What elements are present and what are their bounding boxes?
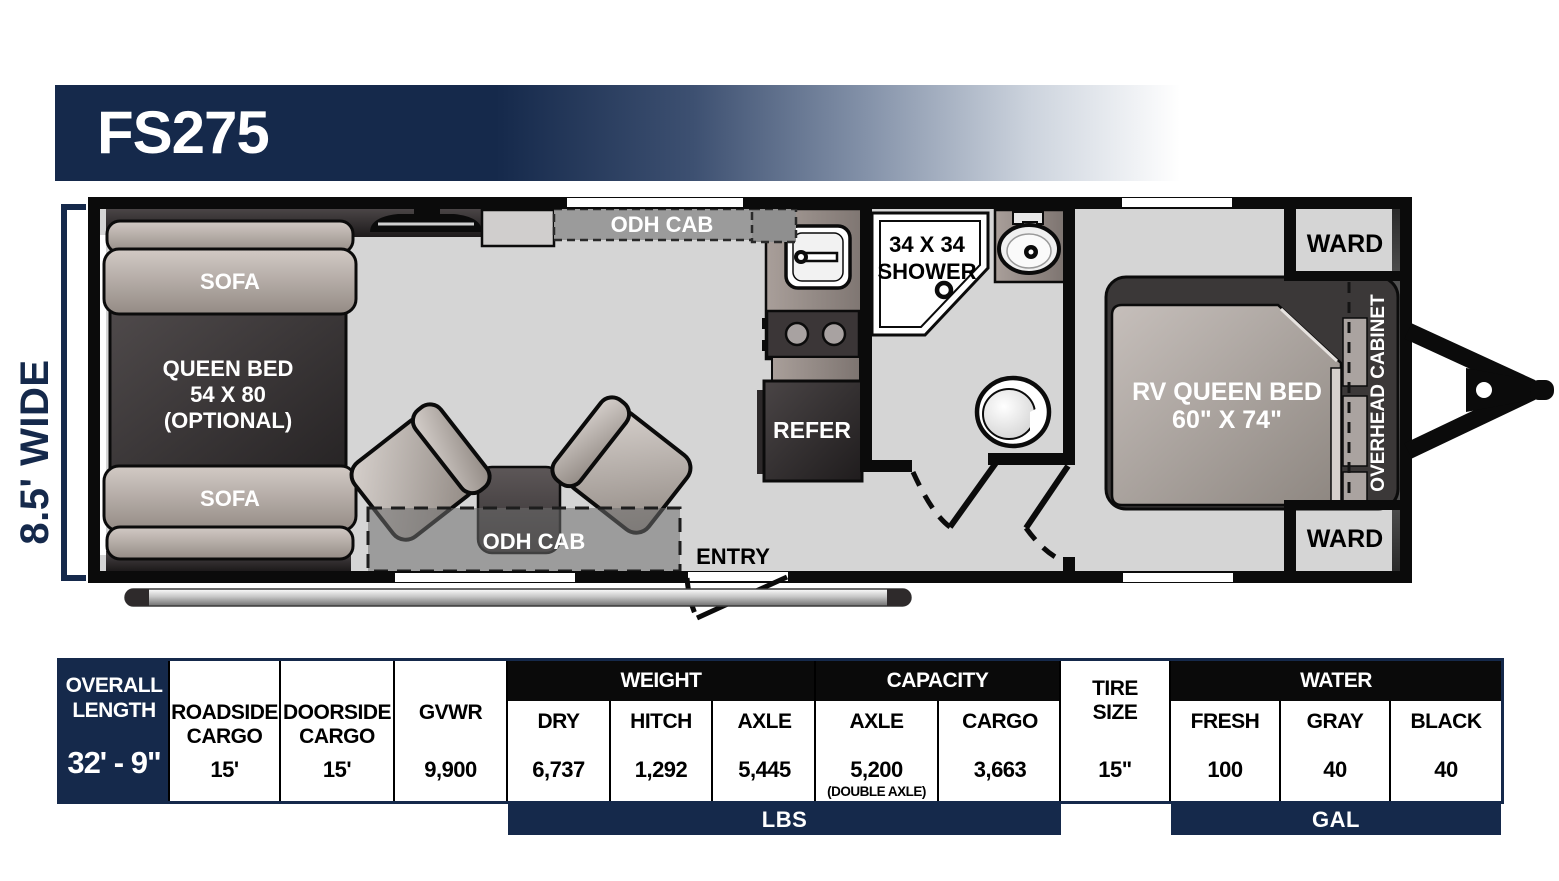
weight-axle-value: 5,445 (713, 757, 816, 783)
queen-bed-label-1: QUEEN BED (163, 356, 294, 381)
hitch (1408, 331, 1554, 451)
tire-size-value: 15" (1061, 757, 1169, 783)
door-stub-wall (1063, 557, 1075, 572)
gvwr-value: 9,900 (395, 757, 506, 783)
spec-table-units-row: LBS GAL (60, 804, 1504, 835)
bed-rail (1331, 368, 1341, 505)
rv-queen-bed-label-1: RV QUEEN BED (1132, 378, 1322, 406)
spec-table-main: OVERALL LENGTH 32' - 9" ROADSIDE CARGO 1… (57, 658, 1504, 804)
ward-top-label: WARD (1307, 230, 1383, 258)
width-bracket (64, 207, 86, 578)
weight-hitch-value: 1,292 (611, 757, 711, 783)
ward-bottom-label: WARD (1307, 525, 1383, 553)
doorside-cargo-value: 15' (281, 757, 393, 783)
roadside-cargo-label-1: ROADSIDE (170, 701, 279, 725)
cabinet-shelf-2 (1343, 396, 1367, 466)
window-bottom-1 (395, 573, 575, 582)
bath-sink-drain-center (1029, 250, 1034, 255)
ward-top-wall-h (1284, 271, 1412, 281)
capacity-axle-value: 5,200 (816, 757, 937, 783)
window-top-1 (567, 198, 743, 207)
capacity-cargo-cell: CARGO 3,663 (939, 701, 1061, 801)
weight-group: WEIGHT DRY 6,737 HITCH 1,292 AXLE 5,445 (508, 661, 816, 801)
water-black-label: BLACK (1391, 701, 1501, 734)
water-header: WATER (1171, 661, 1501, 701)
awning-cap-right (887, 589, 911, 606)
burner-1 (786, 323, 808, 345)
awning-cap-left (125, 589, 149, 606)
roadside-cargo-cell: ROADSIDE CARGO 15' (170, 661, 281, 801)
wall-left (88, 197, 100, 583)
gal-bar: GAL (1171, 804, 1501, 835)
weight-dry-value: 6,737 (508, 757, 609, 783)
bath-wall-foot (860, 460, 912, 472)
queen-bed-label-2: 54 X 80 (190, 382, 266, 407)
cabinet-shelf-1 (1343, 318, 1367, 386)
hitch-pin-hole (1476, 382, 1492, 398)
wall-right (1400, 197, 1412, 583)
overall-length-cell: OVERALL LENGTH 32' - 9" (60, 661, 170, 801)
water-gray-label: GRAY (1281, 701, 1389, 734)
width-label: 8.5' WIDE (13, 359, 57, 544)
roadside-cargo-label-2: CARGO (170, 725, 279, 749)
overall-length-label-1: OVERALL (60, 673, 168, 698)
weight-dry-cell: DRY 6,737 (508, 701, 611, 801)
odh-cab-top-label: ODH CAB (611, 212, 714, 237)
ward-top-wall-v (1284, 209, 1296, 277)
capacity-axle-cell: AXLE 5,200 (DOUBLE AXLE) (816, 701, 939, 801)
water-group: WATER FRESH 100 GRAY 40 BLACK 40 (1171, 661, 1501, 801)
bath-wall-bottom (988, 453, 1075, 465)
floorplan-diagram: SOFA SOFA QUEEN BED 54 X 80 (OPTIONAL) (0, 0, 1559, 655)
refer-label: REFER (773, 417, 851, 443)
shower-label-2: SHOWER (878, 259, 977, 284)
hitch-coupler (1530, 380, 1554, 400)
capacity-axle-note: (DOUBLE AXLE) (816, 784, 937, 799)
weight-hitch-label: HITCH (611, 701, 711, 734)
overall-length-label-2: LENGTH (60, 698, 168, 723)
roadside-cargo-value: 15' (170, 757, 279, 783)
gvwr-cell: GVWR 9,900 (395, 661, 508, 801)
tire-size-label-1: TIRE (1061, 677, 1169, 701)
overhead-cabinet-label: OVERHEAD CABINET (1368, 294, 1389, 492)
width-dimension: 8.5' WIDE (13, 207, 86, 578)
weight-dry-label: DRY (508, 701, 609, 734)
spec-table: OVERALL LENGTH 32' - 9" ROADSIDE CARGO 1… (57, 658, 1504, 835)
entry-opening (688, 572, 788, 581)
shower-drain-icon (937, 283, 951, 297)
ward-bottom-wall-v (1284, 508, 1296, 571)
toilet-bowl (983, 389, 1035, 439)
overall-length-value: 32' - 9" (60, 745, 168, 781)
water-fresh-value: 100 (1171, 757, 1279, 783)
shower-label-1: 34 X 34 (889, 232, 966, 257)
units-spacer-left (60, 804, 508, 835)
tire-size-cell: TIRE SIZE 15" (1061, 661, 1171, 801)
rv-queen-bed-label-2: 60" X 74" (1172, 406, 1282, 434)
faucet-spout (805, 253, 837, 261)
capacity-cargo-value: 3,663 (939, 757, 1061, 783)
weight-axle-cell: AXLE 5,445 (713, 701, 816, 801)
rear-lounge: SOFA SOFA QUEEN BED 54 X 80 (OPTIONAL) (104, 221, 356, 559)
awning-rod (125, 589, 911, 606)
queen-bed-label-3: (OPTIONAL) (164, 408, 292, 433)
units-spacer-tire (1061, 804, 1171, 835)
faucet-center (798, 254, 804, 260)
bath-wall-left (860, 209, 872, 471)
gvwr-label: GVWR (395, 701, 506, 725)
page: FS275 (0, 0, 1559, 881)
water-fresh-label: FRESH (1171, 701, 1279, 734)
water-gray-cell: GRAY 40 (1281, 701, 1391, 801)
weight-hitch-cell: HITCH 1,292 (611, 701, 713, 801)
water-gray-value: 40 (1281, 757, 1389, 783)
water-black-value: 40 (1391, 757, 1501, 783)
capacity-cargo-label: CARGO (939, 701, 1061, 734)
odh-cab-kitchen (752, 209, 796, 242)
water-fresh-cell: FRESH 100 (1171, 701, 1281, 801)
cabinet (482, 210, 554, 246)
water-black-cell: BLACK 40 (1391, 701, 1501, 801)
weight-header: WEIGHT (508, 661, 814, 701)
odh-cab-bottom-label: ODH CAB (483, 529, 586, 554)
doorside-cargo-cell: DOORSIDE CARGO 15' (281, 661, 395, 801)
capacity-group: CAPACITY AXLE 5,200 (DOUBLE AXLE) CARGO … (816, 661, 1061, 801)
counter-step (772, 357, 860, 381)
doorside-cargo-label-2: CARGO (281, 725, 393, 749)
capacity-header: CAPACITY (816, 661, 1059, 701)
tire-size-label-2: SIZE (1061, 701, 1169, 725)
kitchen: REFER (757, 209, 866, 481)
burner-2 (823, 323, 845, 345)
entry-label: ENTRY (696, 544, 770, 569)
bath-wall-right (1063, 209, 1075, 463)
sofa-bottom-label: SOFA (200, 486, 260, 511)
window-bottom-2 (1123, 573, 1233, 582)
ward-bottom-wall-h (1284, 500, 1412, 510)
lbs-bar: LBS (508, 804, 1061, 835)
window-top-2 (1122, 198, 1232, 207)
sofa-bottom-back (107, 527, 353, 559)
cabinet-shelf-3 (1343, 472, 1367, 502)
capacity-axle-label: AXLE (816, 701, 937, 734)
weight-axle-label: AXLE (713, 701, 816, 734)
sofa-top-label: SOFA (200, 269, 260, 294)
doorside-cargo-label-1: DOORSIDE (281, 701, 393, 725)
